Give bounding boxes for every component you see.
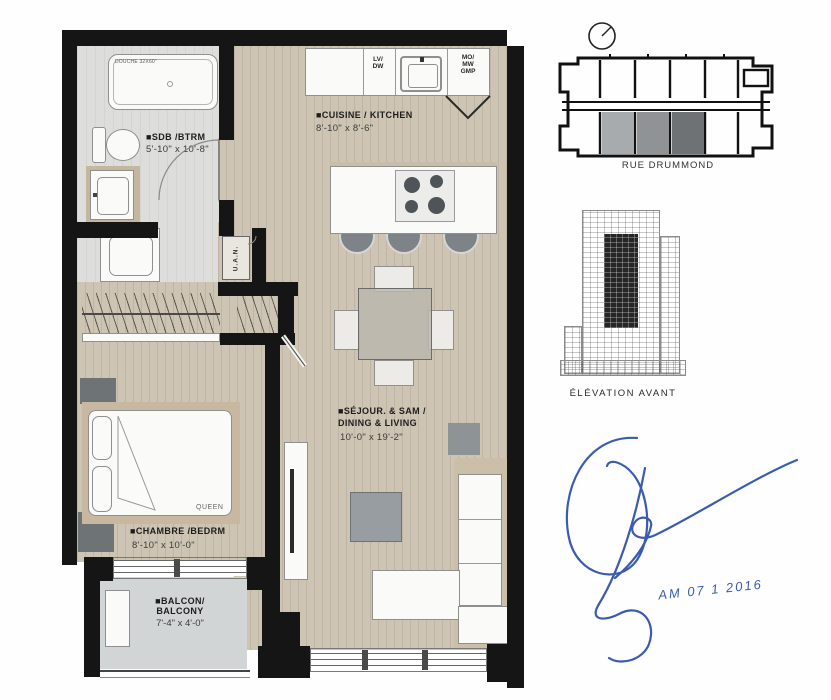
vanity-sink: [90, 170, 134, 220]
dishwasher-label: LV/DW: [362, 56, 394, 70]
faucet-icon: [93, 193, 97, 197]
unit-highlight-dark: [672, 112, 704, 154]
burner-icon: [428, 197, 445, 214]
cooktop: [395, 170, 455, 222]
wall-living-bottom-right: [487, 644, 524, 682]
bathroom-dims: 5'-10" x 10'-8": [146, 144, 209, 155]
wall-top: [62, 30, 507, 46]
burner-icon: [404, 177, 420, 193]
kitchen-label: ■CUISINE / KITCHEN: [316, 110, 413, 120]
side-table: [448, 423, 480, 455]
bathroom-label: ■SDB /BTRM: [146, 132, 205, 142]
tv-console: [284, 442, 308, 580]
tv-icon: [290, 469, 294, 553]
closet2-hangers: [237, 293, 280, 335]
toilet-bowl: [106, 129, 140, 161]
elevation-right-wing: [660, 236, 680, 374]
kitchen-island: [330, 166, 497, 234]
closet-sliding-door: [82, 333, 220, 342]
shower-label: DOUCHE 32X60": [115, 59, 157, 65]
kitchen-sink: [400, 56, 442, 92]
elevation-unit-stack-highlight: [604, 234, 638, 328]
wall-bedroom-living: [265, 342, 280, 560]
pillow: [92, 466, 112, 512]
sofa-seat: [458, 474, 502, 606]
drain-icon: [167, 81, 173, 87]
bedroom-label: ■CHAMBRE /BEDRM: [130, 526, 225, 536]
wall-closet-bottom: [220, 333, 295, 345]
elevation-caption: ÉLÉVATION AVANT: [556, 388, 690, 399]
burner-icon: [405, 200, 418, 213]
bedroom-dims: 8'-10" x 10'-0": [132, 540, 195, 551]
utility-floor: [218, 138, 234, 202]
living-window: [310, 648, 487, 672]
signature: [545, 408, 831, 680]
closet-rod: [82, 313, 220, 315]
elevation-drawing: ÉLÉVATION AVANT: [556, 208, 690, 408]
dining-chair: [334, 310, 360, 350]
living-label-1: ■SÉJOUR. & SAM /: [338, 406, 426, 416]
uan-closet: U.A.N.: [222, 236, 250, 280]
wall-bath-divider-upper: [219, 46, 234, 140]
balcony-label-1: ■BALCON/: [120, 596, 240, 606]
sofa-corner: [458, 606, 510, 644]
coffee-table: [350, 492, 402, 542]
bed-size-label: QUEEN: [196, 504, 223, 511]
north-compass-icon: [589, 23, 615, 49]
wall-living-bottom-left: [258, 646, 310, 678]
faucet-icon: [420, 57, 424, 62]
wall-bath-divider-lower: [219, 200, 234, 236]
living-label-2: DINING & LIVING: [338, 418, 417, 428]
toilet-tank: [92, 127, 106, 163]
nightstand: [80, 378, 116, 404]
microwave-pantry-label: MO/MWGMP: [448, 54, 488, 75]
street-label: RUE DRUMMOND: [548, 160, 788, 171]
sofa-chaise: [372, 570, 460, 620]
balcony-dims: 7'-4" x 4'-0": [120, 618, 240, 629]
unit-floorplan: DOUCHE 32X60" ■SDB /BTRM 5'-10" x 10'-8"…: [62, 30, 524, 692]
wall-bath-bottom: [62, 222, 158, 238]
uan-label: U.A.N.: [233, 245, 240, 271]
balcony-rail: [100, 670, 250, 678]
wall-left: [62, 30, 77, 565]
unit-highlight-light: [602, 112, 634, 154]
elevation-base: [560, 360, 686, 376]
burner-icon: [430, 175, 443, 188]
pillow: [92, 416, 112, 460]
dining-table: [358, 288, 432, 360]
wall-balcony-left: [84, 557, 100, 677]
kitchen-dims: 8'-10" x 8'-6": [316, 123, 373, 134]
balcony-label-2: BALCONY: [120, 606, 240, 616]
balcony-label-block: ■BALCON/ BALCONY 7'-4" x 4'-0": [120, 596, 240, 629]
keyplan-drawing: [548, 14, 788, 164]
bedroom-balcony-window: [113, 557, 247, 579]
living-dims: 10'-0" x 19'-2": [340, 432, 403, 443]
unit-highlight-mid: [637, 112, 669, 154]
dining-chair: [374, 360, 414, 386]
wall-right: [507, 46, 524, 688]
floorplan-sheet: DOUCHE 32X60" ■SDB /BTRM 5'-10" x 10'-8"…: [0, 0, 831, 700]
wall-hall-living: [278, 282, 294, 338]
